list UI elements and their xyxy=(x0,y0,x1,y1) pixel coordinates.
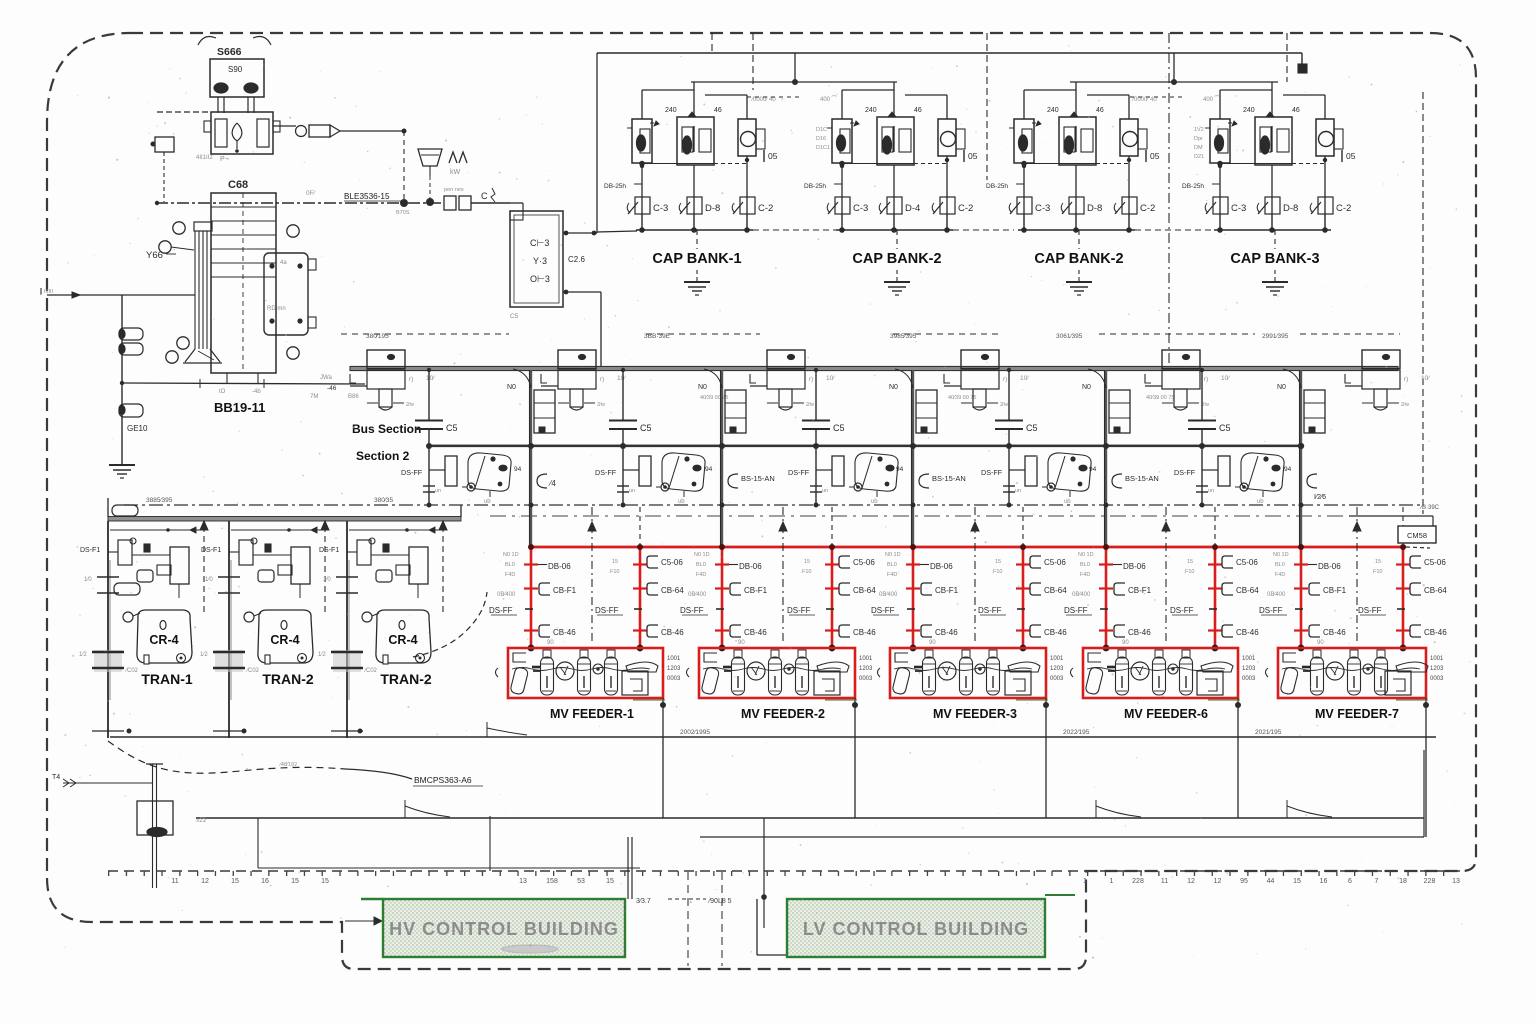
svg-text:C⊢3: C⊢3 xyxy=(530,238,549,248)
svg-text:CB-F1: CB-F1 xyxy=(553,586,577,595)
svg-text:C-2: C-2 xyxy=(958,203,973,214)
svg-text:ʋb: ʋb xyxy=(1257,499,1264,505)
svg-text:90: 90 xyxy=(1317,640,1324,646)
svg-text:MV FEEDER-7: MV FEEDER-7 xyxy=(1315,707,1399,721)
svg-text:DS-FF: DS-FF xyxy=(871,606,895,615)
svg-text:05: 05 xyxy=(768,151,778,161)
svg-text:15: 15 xyxy=(606,878,614,885)
svg-text:r): r) xyxy=(809,376,813,383)
svg-text:BS-15-AN: BS-15-AN xyxy=(932,474,966,483)
svg-text:tO: tO xyxy=(219,389,226,395)
svg-text:CB-64: CB-64 xyxy=(661,586,684,595)
svg-text:-46: -46 xyxy=(327,385,337,392)
svg-text:10⁄: 10⁄ xyxy=(1221,375,1230,382)
svg-text:BB19-11: BB19-11 xyxy=(214,400,265,415)
svg-text:46: 46 xyxy=(1096,107,1104,114)
svg-text:11: 11 xyxy=(1161,878,1168,885)
svg-text:F10: F10 xyxy=(1373,569,1382,575)
svg-text:15: 15 xyxy=(1187,559,1193,565)
svg-text:CR-4: CR-4 xyxy=(388,633,417,647)
svg-text:JWa: JWa xyxy=(320,375,332,381)
svg-text:15: 15 xyxy=(612,559,618,565)
svg-text:1⁄0: 1⁄0 xyxy=(84,577,92,583)
svg-text:DB-25h: DB-25h xyxy=(804,183,826,190)
svg-text:4II1II2: 4II1II2 xyxy=(196,155,213,161)
svg-text:Y66: Y66 xyxy=(146,250,163,261)
svg-text:DS-FF: DS-FF xyxy=(1358,606,1382,615)
svg-text:D-4: D-4 xyxy=(905,203,920,214)
svg-text:⁄90L8 5: ⁄90L8 5 xyxy=(707,898,732,905)
svg-text:DS-FF: DS-FF xyxy=(978,606,1002,615)
svg-text:N0: N0 xyxy=(1277,384,1286,391)
svg-text:r): r) xyxy=(409,376,413,383)
svg-text:0003: 0003 xyxy=(1242,676,1256,682)
svg-text:13: 13 xyxy=(1452,878,1460,885)
svg-text:1001: 1001 xyxy=(1050,656,1064,662)
svg-text:CAP BANK-3: CAP BANK-3 xyxy=(1230,251,1319,267)
svg-text:F10: F10 xyxy=(802,569,811,575)
svg-text:94: 94 xyxy=(705,466,713,473)
svg-text:16: 16 xyxy=(261,878,269,885)
svg-text:C5-06: C5-06 xyxy=(853,558,875,567)
svg-text:CAP BANK-2: CAP BANK-2 xyxy=(852,251,941,267)
svg-text:1203: 1203 xyxy=(667,666,681,672)
svg-text:2⁄w: 2⁄w xyxy=(597,402,605,408)
svg-text:16: 16 xyxy=(1320,878,1328,885)
svg-text:15: 15 xyxy=(995,559,1001,565)
svg-text:0F⁄: 0F⁄ xyxy=(306,190,316,197)
svg-text:1001: 1001 xyxy=(1242,656,1256,662)
svg-text:DS-FF: DS-FF xyxy=(595,606,619,615)
svg-text:CB-46: CB-46 xyxy=(744,628,767,637)
svg-text:LV CONTROL BUILDING: LV CONTROL BUILDING xyxy=(803,919,1029,939)
svg-text:≡2ʡ: ≡2ʡ xyxy=(196,818,206,824)
svg-text:C: C xyxy=(481,191,488,201)
svg-text:r): r) xyxy=(1404,376,1408,383)
svg-text:05: 05 xyxy=(968,151,978,161)
svg-text:F4D: F4D xyxy=(1080,572,1090,578)
svg-text:F4D: F4D xyxy=(505,572,515,578)
svg-text:B86: B86 xyxy=(348,394,359,400)
svg-text:2021⁄195: 2021⁄195 xyxy=(1255,729,1282,736)
svg-text:1001: 1001 xyxy=(859,656,873,662)
svg-text:BL0: BL0 xyxy=(1080,562,1090,568)
svg-text:DS-FF: DS-FF xyxy=(1259,606,1283,615)
svg-text:BS-15-AN: BS-15-AN xyxy=(1125,474,1159,483)
svg-text:CB-64: CB-64 xyxy=(1044,586,1067,595)
svg-text:C-2: C-2 xyxy=(1336,203,1351,214)
svg-text:S90: S90 xyxy=(228,65,243,74)
svg-text:05: 05 xyxy=(1150,151,1160,161)
svg-text:240: 240 xyxy=(865,107,877,114)
svg-text:r): r) xyxy=(1003,376,1007,383)
svg-text:ʋb: ʋb xyxy=(678,499,685,505)
svg-text:Dpr: Dpr xyxy=(1194,136,1203,142)
svg-text:BL0: BL0 xyxy=(505,562,515,568)
svg-text:B70S: B70S xyxy=(396,210,410,216)
svg-text:C-2: C-2 xyxy=(1140,203,1155,214)
svg-text:N0 1D: N0 1D xyxy=(885,552,901,558)
svg-text:10⁄: 10⁄ xyxy=(426,375,435,382)
svg-text:1203: 1203 xyxy=(1242,666,1256,672)
svg-text:0B⁄400: 0B⁄400 xyxy=(688,592,707,598)
svg-text:C5-06: C5-06 xyxy=(661,558,683,567)
svg-text:1001: 1001 xyxy=(1430,656,1444,662)
svg-text:228: 228 xyxy=(1424,878,1436,885)
svg-text:DS-F1: DS-F1 xyxy=(80,547,100,554)
svg-text:2022⁄195: 2022⁄195 xyxy=(1063,729,1090,736)
svg-text:2⁄w: 2⁄w xyxy=(1000,402,1008,408)
svg-text:7M: 7M xyxy=(310,394,318,400)
svg-text:D-8: D-8 xyxy=(705,203,720,214)
svg-text:15: 15 xyxy=(231,878,239,885)
svg-text:240: 240 xyxy=(1047,107,1059,114)
svg-text:TRAN-1: TRAN-1 xyxy=(141,671,193,687)
svg-text:DB-06: DB-06 xyxy=(739,562,762,571)
svg-text:D1C1: D1C1 xyxy=(816,145,830,151)
svg-text:C5: C5 xyxy=(446,423,458,433)
svg-text:DS-FF: DS-FF xyxy=(1174,468,1196,477)
svg-text:DB-25h: DB-25h xyxy=(1182,183,1204,190)
svg-text:CB-46: CB-46 xyxy=(553,628,576,637)
svg-text:C5: C5 xyxy=(1026,423,1038,433)
svg-text:1203: 1203 xyxy=(859,666,873,672)
svg-text:un: un xyxy=(435,488,441,494)
svg-text:0003: 0003 xyxy=(1430,676,1444,682)
svg-text:7: 7 xyxy=(1375,878,1379,885)
svg-text:HV CONTROL BUILDING: HV CONTROL BUILDING xyxy=(389,919,619,939)
svg-text:DS-FF: DS-FF xyxy=(489,606,513,615)
svg-text:CB-46: CB-46 xyxy=(853,628,876,637)
svg-text:C5-06: C5-06 xyxy=(1044,558,1066,567)
svg-text:DS-FF: DS-FF xyxy=(1170,606,1194,615)
svg-text:▌IIIIII: ▌IIIIII xyxy=(40,288,54,295)
svg-text:94: 94 xyxy=(1089,466,1097,473)
svg-text:0B⁄400: 0B⁄400 xyxy=(1072,592,1091,598)
svg-text:90: 90 xyxy=(1122,640,1129,646)
svg-text:95: 95 xyxy=(1240,878,1248,885)
svg-text:N0 1D: N0 1D xyxy=(1078,552,1094,558)
svg-text:90: 90 xyxy=(547,640,554,646)
svg-text:CB-46: CB-46 xyxy=(1044,628,1067,637)
svg-text:CB-64: CB-64 xyxy=(853,586,876,595)
svg-text:2⁄w: 2⁄w xyxy=(406,402,414,408)
svg-text:⁄4: ⁄4 xyxy=(548,479,556,488)
svg-text:46: 46 xyxy=(714,107,722,114)
svg-text:CM58: CM58 xyxy=(1407,531,1427,540)
svg-text:⁄C0ʡ: ⁄C0ʡ xyxy=(124,668,138,674)
svg-text:1V2: 1V2 xyxy=(1194,127,1204,133)
svg-text:N0 1D: N0 1D xyxy=(694,552,710,558)
svg-text:D-8: D-8 xyxy=(1283,203,1298,214)
svg-text:MV FEEDER-6: MV FEEDER-6 xyxy=(1124,707,1208,721)
svg-text:BS-15-AN: BS-15-AN xyxy=(741,474,775,483)
svg-text:DB-06: DB-06 xyxy=(548,562,571,571)
svg-text:CB-F1: CB-F1 xyxy=(1323,586,1347,595)
svg-text:240: 240 xyxy=(1243,107,1255,114)
svg-text:1⁄0: 1⁄0 xyxy=(323,577,331,583)
svg-text:DS-FF: DS-FF xyxy=(981,468,1003,477)
svg-text:44: 44 xyxy=(1267,878,1275,885)
svg-text:DS-FF: DS-FF xyxy=(788,468,810,477)
svg-text:D-8: D-8 xyxy=(1087,203,1102,214)
svg-text:CB-64: CB-64 xyxy=(1424,586,1447,595)
svg-text:CR-4: CR-4 xyxy=(270,633,299,647)
svg-text:CB-46: CB-46 xyxy=(1128,628,1151,637)
svg-text:DM: DM xyxy=(1194,145,1203,151)
svg-text:C-3: C-3 xyxy=(1231,203,1246,214)
svg-text:DS-FF: DS-FF xyxy=(1064,606,1088,615)
svg-text:228: 228 xyxy=(1132,878,1144,885)
svg-text:53: 53 xyxy=(577,878,585,885)
svg-text:400 ⁀: 400 ⁀ xyxy=(1203,95,1221,103)
svg-text:F10: F10 xyxy=(1185,569,1194,575)
svg-text:10⁄: 10⁄ xyxy=(826,375,835,382)
svg-text:DS-FF: DS-FF xyxy=(680,606,704,615)
svg-text:18: 18 xyxy=(1399,878,1407,885)
svg-text:un: un xyxy=(1015,488,1021,494)
svg-text:CB-F1: CB-F1 xyxy=(1128,586,1152,595)
svg-text:T4: T4 xyxy=(52,774,60,781)
svg-text:un: un xyxy=(1208,488,1214,494)
svg-text:DS-F1: DS-F1 xyxy=(201,547,221,554)
svg-text:DB-25h: DB-25h xyxy=(986,183,1008,190)
svg-text:un: un xyxy=(629,488,635,494)
svg-text:Y·3: Y·3 xyxy=(533,256,547,266)
svg-text:C-3: C-3 xyxy=(853,203,868,214)
svg-text:13: 13 xyxy=(519,878,527,885)
svg-text:N0: N0 xyxy=(889,384,898,391)
svg-text:DS-FF: DS-FF xyxy=(401,468,423,477)
svg-text:1203: 1203 xyxy=(1050,666,1064,672)
svg-text:N0: N0 xyxy=(1082,384,1091,391)
svg-text:1001: 1001 xyxy=(667,656,681,662)
svg-text:N0 1D: N0 1D xyxy=(503,552,519,558)
svg-text:r): r) xyxy=(600,376,604,383)
svg-text:CB-46: CB-46 xyxy=(1323,628,1346,637)
svg-text:F10: F10 xyxy=(610,569,619,575)
svg-text:15: 15 xyxy=(321,878,329,885)
svg-text:BL0: BL0 xyxy=(887,562,897,568)
svg-text:Section 2: Section 2 xyxy=(356,449,410,463)
svg-text:GE10: GE10 xyxy=(127,424,148,433)
svg-text:6: 6 xyxy=(1348,878,1352,885)
svg-text:C5: C5 xyxy=(510,313,519,320)
svg-text:94: 94 xyxy=(896,466,904,473)
svg-text:0003: 0003 xyxy=(859,676,873,682)
svg-text:CAP BANK-1: CAP BANK-1 xyxy=(652,251,741,267)
svg-text:pen nes: pen nes xyxy=(444,187,464,193)
svg-text:MV FEEDER-1: MV FEEDER-1 xyxy=(550,707,634,721)
svg-text:F10: F10 xyxy=(993,569,1002,575)
svg-text:ʋb: ʋb xyxy=(1064,499,1071,505)
svg-text:⁄0000⁄ 40: ⁄0000⁄ 40 xyxy=(1131,97,1157,103)
svg-text:CAP BANK-2: CAP BANK-2 xyxy=(1034,251,1123,267)
svg-text:⁄C0ʡ: ⁄C0ʡ xyxy=(245,668,259,674)
svg-text:TRAN-2: TRAN-2 xyxy=(380,671,432,687)
svg-text:11: 11 xyxy=(171,878,178,885)
svg-text:C5-06: C5-06 xyxy=(1236,558,1258,567)
svg-text:15: 15 xyxy=(1375,559,1381,565)
svg-text:158: 158 xyxy=(546,878,558,885)
svg-text:240: 240 xyxy=(665,107,677,114)
svg-text:C2.6: C2.6 xyxy=(568,255,585,264)
svg-text:C-3: C-3 xyxy=(653,203,668,214)
svg-text:94: 94 xyxy=(1284,466,1292,473)
svg-text:05: 05 xyxy=(1346,151,1356,161)
svg-text:CB-46: CB-46 xyxy=(1424,628,1447,637)
svg-text:BMCPS363-A6: BMCPS363-A6 xyxy=(414,775,472,785)
svg-text:2991⁄395: 2991⁄395 xyxy=(1262,333,1289,340)
svg-text:O⊢3: O⊢3 xyxy=(530,274,550,284)
svg-text:⁄48⁄19ʡ: ⁄48⁄19ʡ xyxy=(278,762,297,768)
svg-text:BL0: BL0 xyxy=(696,562,706,568)
svg-text:3⁄3.7: 3⁄3.7 xyxy=(636,898,651,905)
svg-text:S666: S666 xyxy=(217,46,242,58)
svg-text:P¬: P¬ xyxy=(220,156,229,163)
svg-text:C5: C5 xyxy=(1219,423,1231,433)
svg-text:TRAN-2: TRAN-2 xyxy=(262,671,314,687)
svg-text:0B⁄400: 0B⁄400 xyxy=(879,592,898,598)
svg-text:DB-06: DB-06 xyxy=(1123,562,1146,571)
svg-text:2002⁄1995: 2002⁄1995 xyxy=(680,729,710,736)
svg-text:RD mn: RD mn xyxy=(267,306,286,312)
svg-text:F4D: F4D xyxy=(696,572,706,578)
svg-text:CB-46: CB-46 xyxy=(661,628,684,637)
svg-text:3061⁄395: 3061⁄395 xyxy=(1056,333,1083,340)
svg-text:1: 1 xyxy=(1083,878,1087,885)
svg-text:C5-06: C5-06 xyxy=(1424,558,1446,567)
svg-text:15: 15 xyxy=(1293,878,1301,885)
svg-text:40⁄39 00 75: 40⁄39 00 75 xyxy=(700,395,728,401)
svg-text:0003: 0003 xyxy=(1050,676,1064,682)
svg-text:2⁄w: 2⁄w xyxy=(806,402,814,408)
svg-text:DB-06: DB-06 xyxy=(1318,562,1341,571)
svg-text:12: 12 xyxy=(201,878,209,885)
svg-text:DS-F1: DS-F1 xyxy=(319,547,339,554)
svg-text:C5: C5 xyxy=(833,423,845,433)
svg-text:1⁄2: 1⁄2 xyxy=(200,652,208,658)
svg-text:C68: C68 xyxy=(228,179,248,191)
svg-text:un: un xyxy=(822,488,828,494)
svg-text:F4D: F4D xyxy=(887,572,897,578)
svg-text:C5: C5 xyxy=(640,423,652,433)
svg-text:10⁄: 10⁄ xyxy=(1421,375,1430,382)
svg-text:94: 94 xyxy=(514,466,522,473)
svg-text:N0: N0 xyxy=(698,384,707,391)
svg-text:r): r) xyxy=(1204,376,1208,383)
svg-text:380⁄35: 380⁄35 xyxy=(374,497,394,504)
svg-text:DS-FF: DS-FF xyxy=(787,606,811,615)
svg-text:0003: 0003 xyxy=(667,676,681,682)
svg-text:BLE3536-15: BLE3536-15 xyxy=(344,192,390,201)
svg-text:CB-46: CB-46 xyxy=(1236,628,1259,637)
svg-text:C-3: C-3 xyxy=(1035,203,1050,214)
svg-text:D1C: D1C xyxy=(816,127,827,133)
svg-text:C-2: C-2 xyxy=(758,203,773,214)
svg-text:Bus Section: Bus Section xyxy=(352,422,421,436)
svg-text:N0: N0 xyxy=(507,384,516,391)
svg-text:0B⁄400: 0B⁄400 xyxy=(497,592,516,598)
svg-text:1⁄0: 1⁄0 xyxy=(205,577,213,583)
svg-text:1: 1 xyxy=(1110,878,1114,885)
svg-text:⁄0000⁄ 40: ⁄0000⁄ 40 xyxy=(750,97,776,103)
svg-text:DS-FF: DS-FF xyxy=(595,468,617,477)
svg-text:CB-64: CB-64 xyxy=(1236,586,1259,595)
svg-text:N0 1D: N0 1D xyxy=(1273,552,1289,558)
svg-text:-4b: -4b xyxy=(252,389,261,395)
svg-text:90: 90 xyxy=(929,640,936,646)
svg-text:MV FEEDER-3: MV FEEDER-3 xyxy=(933,707,1017,721)
svg-text:kW: kW xyxy=(450,169,461,176)
svg-text:1⁄2: 1⁄2 xyxy=(79,652,87,658)
svg-text:12: 12 xyxy=(1214,878,1222,885)
svg-text:0B⁄400: 0B⁄400 xyxy=(1267,592,1286,598)
svg-text:10⁄: 10⁄ xyxy=(1020,375,1029,382)
svg-text:1⁄2: 1⁄2 xyxy=(318,652,326,658)
svg-text:2⁄w: 2⁄w xyxy=(1401,402,1409,408)
svg-text:46: 46 xyxy=(1292,107,1300,114)
svg-text:10⁄: 10⁄ xyxy=(617,375,626,382)
svg-text:15: 15 xyxy=(291,878,299,885)
svg-text:46: 46 xyxy=(914,107,922,114)
svg-text:4a: 4a xyxy=(280,260,287,266)
svg-text:15: 15 xyxy=(804,559,810,565)
svg-text:I⁄2⁄6: I⁄2⁄6 xyxy=(1314,494,1326,501)
svg-text:⁄C0ʡ: ⁄C0ʡ xyxy=(363,668,377,674)
svg-text:BL0: BL0 xyxy=(1275,562,1285,568)
svg-text:CB-46: CB-46 xyxy=(935,628,958,637)
svg-text:D21: D21 xyxy=(1194,154,1204,160)
svg-text:CB-F1: CB-F1 xyxy=(744,586,768,595)
svg-text:ʋb: ʋb xyxy=(484,499,491,505)
svg-text:90: 90 xyxy=(738,640,745,646)
svg-text:ʋb: ʋb xyxy=(871,499,878,505)
svg-text:12: 12 xyxy=(1187,878,1195,885)
svg-text:MV FEEDER-2: MV FEEDER-2 xyxy=(741,707,825,721)
svg-text:400 ⁀: 400 ⁀ xyxy=(820,95,838,103)
svg-text:40⁄39 00 75: 40⁄39 00 75 xyxy=(948,395,976,401)
svg-text:1203: 1203 xyxy=(1430,666,1444,672)
svg-text:⁄B·39C: ⁄B·39C xyxy=(1419,505,1440,511)
svg-text:DB-06: DB-06 xyxy=(930,562,953,571)
svg-text:CR-4: CR-4 xyxy=(149,633,178,647)
svg-text:CB-F1: CB-F1 xyxy=(935,586,959,595)
svg-text:40⁄39 00 75: 40⁄39 00 75 xyxy=(1146,395,1174,401)
svg-text:D16: D16 xyxy=(816,136,826,142)
svg-text:3885⁄395: 3885⁄395 xyxy=(146,497,173,504)
svg-text:F4D: F4D xyxy=(1275,572,1285,578)
